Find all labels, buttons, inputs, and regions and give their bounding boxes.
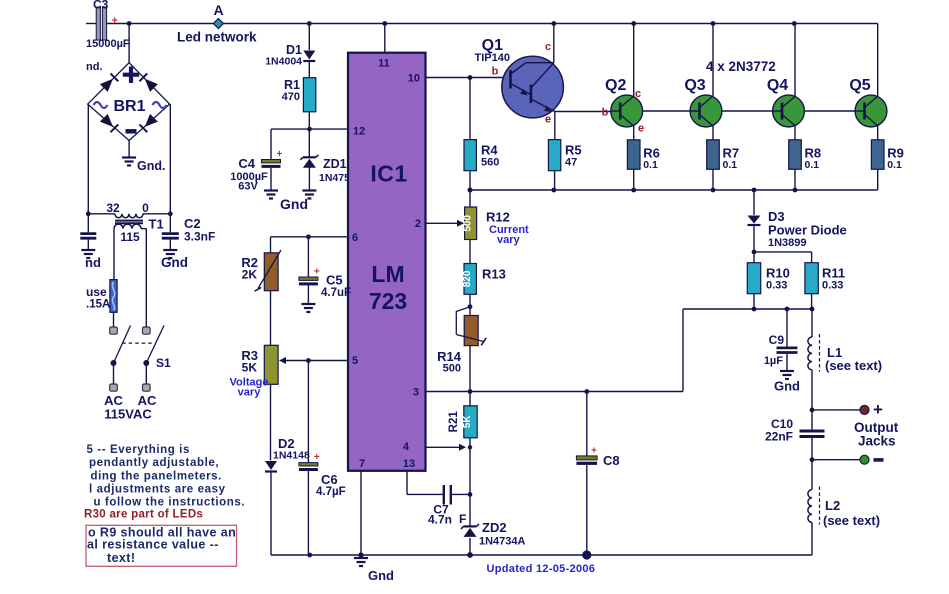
svg-text:Gnd: Gnd xyxy=(280,196,308,212)
svg-text:0.33: 0.33 xyxy=(766,280,787,292)
svg-text:R30 are part of LEDs: R30 are part of LEDs xyxy=(84,509,203,521)
svg-text:R1: R1 xyxy=(284,78,300,92)
svg-text:R21: R21 xyxy=(448,411,460,433)
svg-text:2: 2 xyxy=(415,218,421,230)
svg-text:723: 723 xyxy=(369,288,407,314)
svg-text:+: + xyxy=(591,446,597,457)
svg-text:0: 0 xyxy=(142,201,149,215)
svg-text:R5: R5 xyxy=(565,143,582,158)
svg-text:C8: C8 xyxy=(603,453,620,468)
svg-text:0.1: 0.1 xyxy=(723,159,738,171)
svg-text:0.1: 0.1 xyxy=(887,159,902,171)
svg-text:47: 47 xyxy=(565,157,577,169)
svg-text:+: + xyxy=(277,149,283,160)
svg-text:ding the panelmeters.: ding the panelmeters. xyxy=(91,470,222,482)
svg-text:Led network: Led network xyxy=(177,30,257,45)
svg-text:15000µF: 15000µF xyxy=(86,38,130,50)
svg-text:1N3899: 1N3899 xyxy=(768,237,807,249)
svg-text:560: 560 xyxy=(481,157,499,169)
svg-text:+: + xyxy=(314,267,320,278)
svg-text:Gnd: Gnd xyxy=(368,568,394,583)
svg-text:63V: 63V xyxy=(238,181,258,193)
svg-text:C9: C9 xyxy=(769,333,785,347)
svg-text:+: + xyxy=(314,452,320,463)
svg-text:12: 12 xyxy=(353,126,365,138)
svg-text:10: 10 xyxy=(408,73,420,85)
svg-text:Q5: Q5 xyxy=(849,77,870,94)
svg-text:Power Diode: Power Diode xyxy=(768,223,847,238)
svg-text:IC1: IC1 xyxy=(370,161,407,187)
svg-text:Gnd: Gnd xyxy=(774,379,800,394)
svg-text:C6: C6 xyxy=(321,472,338,487)
svg-text:nd.: nd. xyxy=(86,61,103,73)
svg-text:+: + xyxy=(873,400,883,419)
svg-text:e: e xyxy=(638,123,644,135)
svg-text:7: 7 xyxy=(359,458,365,470)
svg-text:L2: L2 xyxy=(825,498,840,513)
svg-text:(see text): (see text) xyxy=(825,358,882,373)
svg-text:1N4734A: 1N4734A xyxy=(479,536,526,548)
svg-text:13: 13 xyxy=(403,458,415,470)
svg-text:6: 6 xyxy=(352,232,358,244)
svg-text:R13: R13 xyxy=(482,267,506,282)
svg-text:Jacks: Jacks xyxy=(858,434,896,449)
svg-text:3.3nF: 3.3nF xyxy=(184,230,215,244)
svg-text:0.33: 0.33 xyxy=(822,280,843,292)
svg-text:F: F xyxy=(459,512,466,526)
svg-text:5: 5 xyxy=(352,355,358,367)
svg-text:4 x 2N3772: 4 x 2N3772 xyxy=(706,59,776,74)
svg-text:LM: LM xyxy=(371,261,404,287)
svg-text:11: 11 xyxy=(378,58,390,70)
svg-text:Q4: Q4 xyxy=(767,77,788,94)
svg-text:5K: 5K xyxy=(242,361,258,375)
svg-text:Q2: Q2 xyxy=(605,77,626,94)
svg-text:S1: S1 xyxy=(156,356,171,370)
svg-text:1N4148: 1N4148 xyxy=(273,450,310,462)
svg-text:b: b xyxy=(492,66,499,78)
svg-text:0.1: 0.1 xyxy=(805,159,820,171)
svg-text:R4: R4 xyxy=(481,143,498,158)
svg-text:b: b xyxy=(602,107,609,119)
svg-text:al resistance value --: al resistance value -- xyxy=(87,537,219,551)
svg-text:use: use xyxy=(86,285,107,299)
svg-text:BR1: BR1 xyxy=(113,98,145,115)
svg-text:l adjustments are easy: l adjustments are easy xyxy=(89,484,226,496)
svg-text:c: c xyxy=(545,41,551,53)
svg-text:C4: C4 xyxy=(238,156,255,171)
svg-text:1N4004: 1N4004 xyxy=(265,56,302,68)
svg-text:4.7µF: 4.7µF xyxy=(316,486,346,498)
svg-text:5K: 5K xyxy=(462,415,473,429)
svg-text:4.7n: 4.7n xyxy=(428,513,452,527)
svg-text:0.1: 0.1 xyxy=(643,159,658,171)
svg-text:R11: R11 xyxy=(822,266,845,281)
svg-text:ZD2: ZD2 xyxy=(482,520,507,535)
svg-text:T1: T1 xyxy=(149,217,164,232)
svg-text:Gnd.: Gnd. xyxy=(137,159,165,173)
svg-text:470: 470 xyxy=(282,91,300,103)
svg-text:R10: R10 xyxy=(766,266,790,281)
svg-text:32: 32 xyxy=(106,201,120,215)
svg-text:Updated 12-05-2006: Updated 12-05-2006 xyxy=(487,563,596,575)
svg-text:500: 500 xyxy=(443,363,461,375)
svg-text:(see text): (see text) xyxy=(823,513,880,528)
svg-text:22nF: 22nF xyxy=(765,430,793,444)
svg-text:115VAC: 115VAC xyxy=(104,407,152,422)
svg-text:ZD1: ZD1 xyxy=(323,157,347,171)
svg-text:820: 820 xyxy=(462,270,473,287)
svg-text:1µF: 1µF xyxy=(764,355,783,367)
svg-text:C3: C3 xyxy=(93,0,109,12)
svg-text:c: c xyxy=(635,88,641,100)
svg-text:vary: vary xyxy=(497,234,521,246)
svg-text:Gnd: Gnd xyxy=(161,255,188,270)
svg-text:5 -- Everything is: 5 -- Everything is xyxy=(87,444,190,456)
svg-text:Q3: Q3 xyxy=(684,77,705,94)
svg-text:+: + xyxy=(112,15,118,27)
svg-text:text!: text! xyxy=(107,551,135,565)
svg-text:nd: nd xyxy=(85,255,101,270)
svg-text:vary: vary xyxy=(238,387,262,399)
svg-text:pendantly adjustable,: pendantly adjustable, xyxy=(89,457,219,469)
svg-text:u follow the instructions.: u follow the instructions. xyxy=(94,497,246,509)
svg-text:3: 3 xyxy=(413,387,419,399)
svg-text:e: e xyxy=(545,114,551,126)
svg-text:115: 115 xyxy=(120,230,140,244)
svg-text:2K: 2K xyxy=(242,268,258,282)
svg-text:.15A: .15A xyxy=(86,299,110,311)
svg-text:TIP140: TIP140 xyxy=(475,52,510,64)
svg-text:4: 4 xyxy=(403,441,410,453)
svg-text:A: A xyxy=(213,2,223,18)
svg-text:500: 500 xyxy=(462,215,473,232)
svg-text:R12: R12 xyxy=(486,210,510,225)
svg-text:C5: C5 xyxy=(326,273,343,288)
svg-text:4.7uF: 4.7uF xyxy=(321,287,351,299)
